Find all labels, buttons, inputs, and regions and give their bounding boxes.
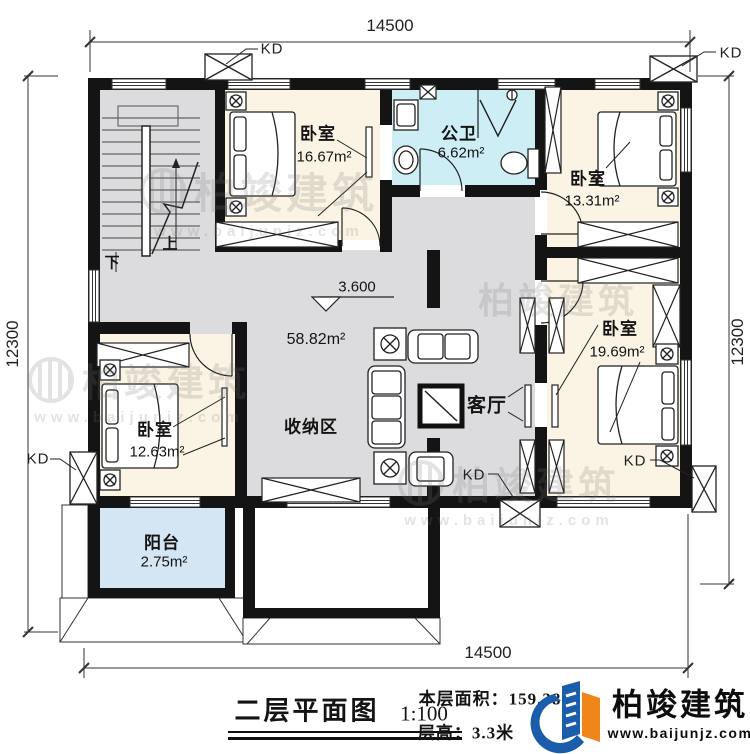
room-label-bedroom-13: 卧室 <box>570 165 606 190</box>
kd-label-top-right: KD <box>720 45 743 62</box>
dimension-right: 12300 <box>728 318 748 365</box>
room-area-bathroom: 6.62m² <box>438 145 485 162</box>
room-area-bedroom-19: 19.69m² <box>589 344 644 361</box>
kd-label-right: KD <box>624 453 647 470</box>
room-area-living: 58.82m² <box>287 331 346 349</box>
room-label-balcony: 阳台 <box>144 529 180 554</box>
floor-plan-drawing <box>0 0 750 754</box>
floor-height-text: 层高：3.3米 <box>418 719 514 744</box>
dimension-left: 12300 <box>3 320 23 367</box>
stairs-up-label: 上 <box>162 233 177 254</box>
room-label-bedroom-16: 卧室 <box>300 120 336 145</box>
room-area-balcony: 2.75m² <box>141 554 188 571</box>
room-area-bedroom-12: 12.63m² <box>129 444 184 461</box>
room-area-bedroom-16: 16.67m² <box>296 149 351 166</box>
stairs-down-label: 下 <box>104 252 119 273</box>
room-label-bedroom-12: 卧室 <box>137 416 173 441</box>
room-label-living: 客厅 <box>467 391 507 418</box>
brand-name: 柏竣建筑 <box>612 680 748 725</box>
drawing-title: 二层平面图 <box>234 691 379 728</box>
dimension-bottom: 14500 <box>464 643 511 663</box>
room-label-bathroom: 公卫 <box>441 120 477 145</box>
kd-label-top-left: KD <box>261 41 284 58</box>
room-area-bedroom-13: 13.31m² <box>564 193 619 210</box>
dimension-top: 14500 <box>366 16 413 36</box>
kd-label-bottom: KD <box>463 467 486 484</box>
kd-label-left: KD <box>27 451 50 468</box>
brand-logo-icon <box>520 676 620 754</box>
floor-plan-page: 柏竣建筑 www.baijunjz.com 柏竣建筑 柏竣建筑 www.baij… <box>0 0 750 754</box>
room-label-storage: 收纳区 <box>284 413 338 438</box>
room-label-bedroom-19: 卧室 <box>602 315 638 340</box>
level-mark-label: 3.600 <box>338 279 376 296</box>
brand-website: www.baijunjz.com <box>608 725 750 741</box>
